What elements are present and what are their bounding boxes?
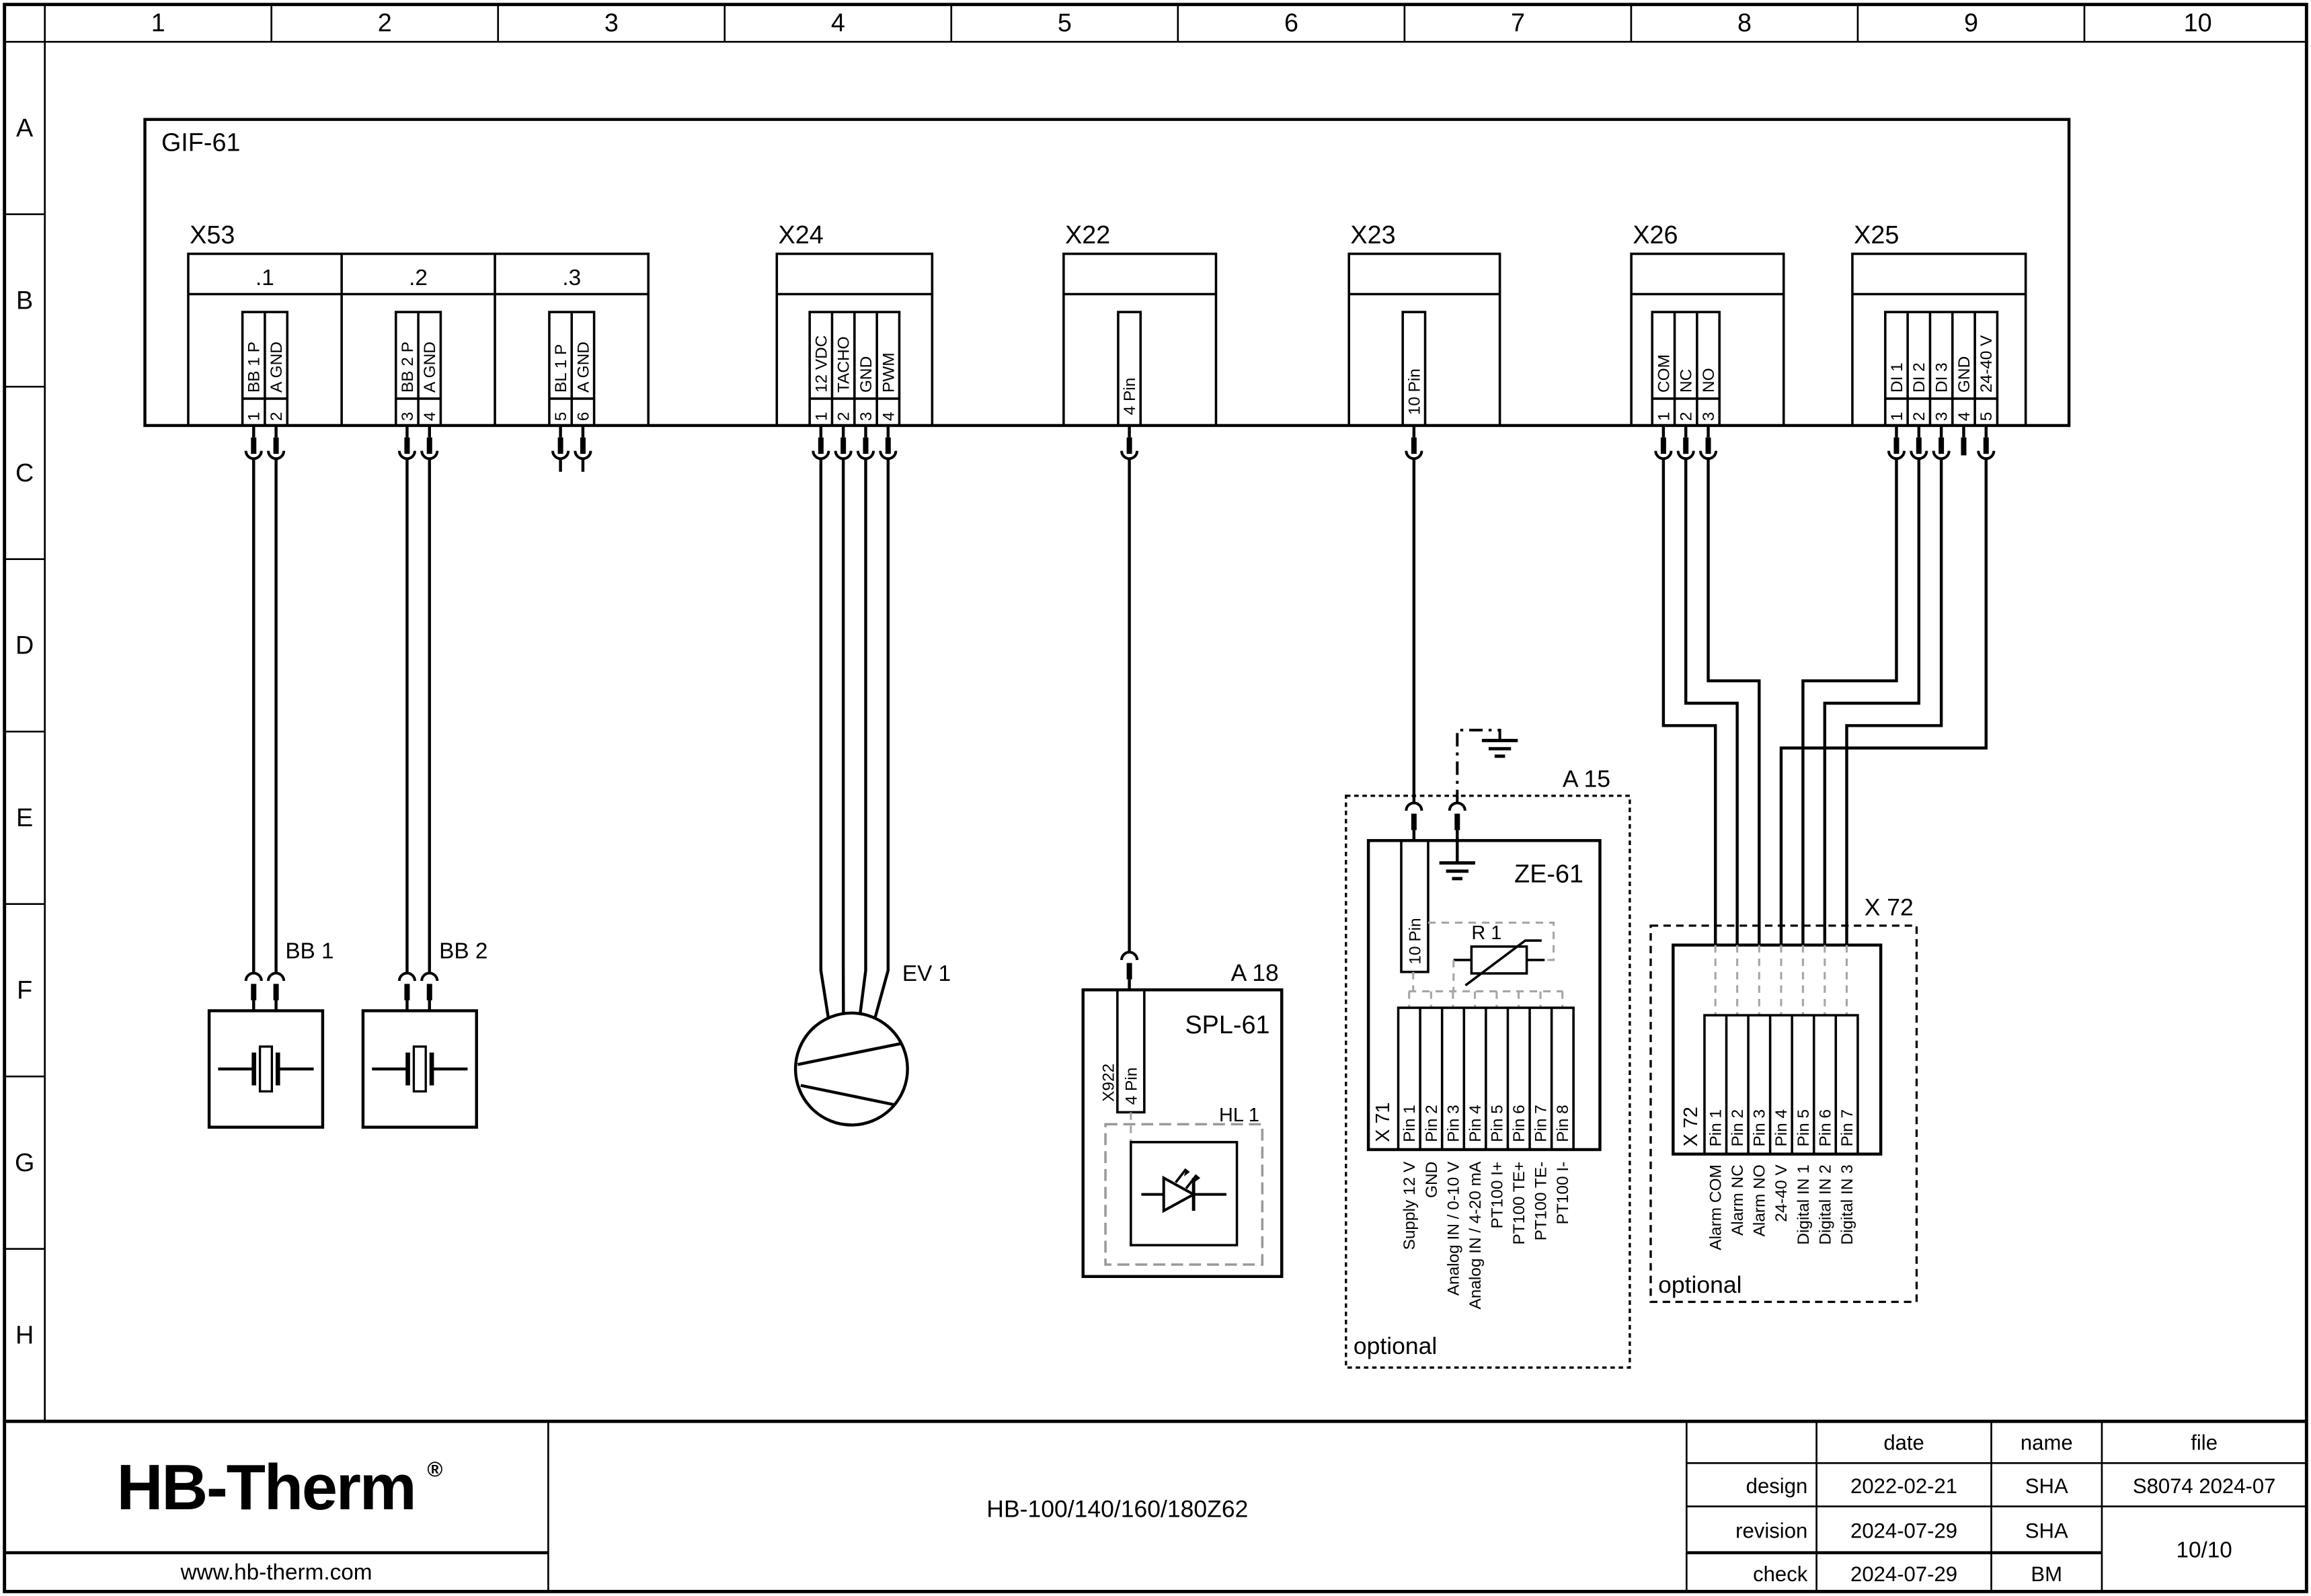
connector-x23: X23 10 Pin <box>1349 221 1499 426</box>
plug-icon <box>1122 426 1137 458</box>
component-a15-ze61: A 15 ZE-61 10 Pin R 1 <box>1346 730 1630 1367</box>
section-label: .1 <box>256 266 274 290</box>
grid-col-label: 3 <box>604 9 619 38</box>
pin-number: 3 <box>1933 412 1951 422</box>
pin-label: Pin 2 <box>1729 1109 1747 1147</box>
pin-label: Pin 4 <box>1466 1105 1485 1142</box>
pin-number: 2 <box>835 412 853 422</box>
pin-label: Pin 2 <box>1423 1105 1441 1142</box>
connector-label: X26 <box>1633 221 1678 249</box>
pin-number: 1 <box>1888 412 1906 422</box>
pin-label: 24-40 V <box>1977 335 1996 393</box>
check-date: 2024-07-29 <box>1850 1562 1957 1586</box>
grid-col-label: 5 <box>1058 9 1072 38</box>
column-header-name: name <box>2021 1431 2073 1454</box>
pin-label: 10 Pin <box>1405 368 1423 415</box>
ground-icon <box>1482 741 1518 756</box>
row-label-revision: revision <box>1735 1519 1807 1542</box>
pin-label: Pin 1 <box>1707 1109 1725 1147</box>
plug-icon <box>1655 426 1671 458</box>
grid-col-label: 2 <box>378 9 392 38</box>
pin-label: NC <box>1678 369 1696 393</box>
plug-icon <box>1978 426 1994 458</box>
pin-label: Pin 6 <box>1816 1109 1834 1147</box>
connector-label: X24 <box>779 221 824 249</box>
grid-row-label: G <box>15 1149 34 1177</box>
plug-icon <box>858 426 873 458</box>
pin-label: A GND <box>421 342 439 393</box>
grid-row-label: B <box>16 287 33 315</box>
pin-number: 4 <box>879 412 898 422</box>
pin-function-label: PT100 I- <box>1554 1162 1572 1225</box>
sheet-frame: 1 2 3 4 5 6 7 8 9 10 A B C D E F G H <box>5 5 2307 1592</box>
pin-function-label: Supply 12 V <box>1401 1161 1419 1250</box>
plug-icon <box>1700 426 1716 458</box>
plug-icon <box>1934 426 1949 458</box>
component-x72: X 72 X 72 Pin 1 Pin 2 Pin 3 Pin 4 Pin 5 … <box>1651 893 1916 1302</box>
resistor-label: R 1 <box>1471 922 1501 944</box>
plug-icon-pin-only <box>1961 426 1966 455</box>
component-ref: A 15 <box>1563 765 1610 792</box>
design-date: 2022-02-21 <box>1850 1474 1957 1498</box>
pin-label: TACHO <box>835 336 853 393</box>
pin-label: Pin 1 <box>1401 1105 1419 1142</box>
component-a18-spl61: A 18 SPL-61 X922 4 Pin HL 1 <box>1083 959 1282 1277</box>
pin-number: 2 <box>1910 412 1928 422</box>
connector-label: X25 <box>1854 221 1899 249</box>
pin-function-label: PT100 I+ <box>1488 1162 1506 1229</box>
connector-x24: X24 1 12 VDC 2 TACHO 3 GND 4 PWM <box>777 221 932 426</box>
column-header-date: date <box>1883 1431 1924 1454</box>
connector-x26: X26 1 COM 2 NC 3 NO <box>1631 221 1784 426</box>
plug-icon <box>399 426 415 458</box>
component-bb2: BB 2 <box>363 939 488 1127</box>
pin-number: 3 <box>399 412 417 422</box>
section-label: .3 <box>562 266 581 290</box>
fan-icon <box>797 1043 900 1105</box>
grid-col-label: 4 <box>831 9 845 38</box>
plug-icon <box>1678 426 1694 458</box>
vendor-logo: HB-Therm ® <box>116 1452 442 1523</box>
pin-label: PWM <box>879 352 898 393</box>
pin-number: 1 <box>1655 412 1673 422</box>
pin-function-label: 24-40 V <box>1772 1164 1791 1222</box>
plug-icon <box>1911 426 1926 458</box>
connector-label: X22 <box>1065 221 1110 249</box>
terminal-label: X 72 <box>1680 1107 1702 1146</box>
schematic-sheet: 1 2 3 4 5 6 7 8 9 10 A B C D E F G H GIF… <box>0 0 2311 1596</box>
plug-icon <box>268 426 284 458</box>
component-ref: A 18 <box>1231 959 1279 986</box>
section-label: .2 <box>409 266 428 290</box>
pin-function-label: Alarm NC <box>1729 1164 1747 1236</box>
plug-icon <box>268 973 284 1010</box>
pin-label: Pin 5 <box>1795 1109 1813 1147</box>
connector-x53: X53 .1 .2 .3 1 BB 1 P 2 A GND 3 BB 2 P 4… <box>188 221 648 426</box>
plug-icon <box>246 426 262 458</box>
plug-icon <box>1406 426 1421 458</box>
pin-number: 3 <box>857 412 875 422</box>
pin-label: Pin 4 <box>1772 1109 1791 1147</box>
plug-icon-unconnected <box>553 426 568 472</box>
ground-icon <box>1440 863 1475 879</box>
component-label: ZE-61 <box>1514 860 1583 888</box>
component-label: BB 2 <box>439 939 487 964</box>
pin-label: BB 1 P <box>245 342 264 393</box>
lamp-label: HL 1 <box>1219 1105 1259 1126</box>
crystal-icon <box>372 1047 467 1092</box>
terminal-label: X 71 <box>1372 1103 1394 1142</box>
pin-label: Pin 5 <box>1488 1105 1506 1142</box>
column-header-file: file <box>2191 1431 2218 1454</box>
registered-mark: ® <box>427 1458 442 1481</box>
pin-label: Pin 8 <box>1554 1105 1572 1142</box>
plug-icon <box>1889 426 1904 458</box>
connector-x22: X22 4 Pin <box>1064 221 1216 426</box>
logo-text: HB-Therm <box>116 1452 415 1523</box>
pin-label: DI 3 <box>1933 362 1951 393</box>
grid-row-label: H <box>15 1322 34 1350</box>
pin-label: A GND <box>574 342 592 393</box>
revision-date: 2024-07-29 <box>1850 1519 1957 1542</box>
pin-function-label: GND <box>1423 1162 1441 1198</box>
component-label: SPL-61 <box>1185 1011 1270 1039</box>
pin-number: 4 <box>421 412 439 422</box>
grid-col-label: 7 <box>1511 9 1525 38</box>
pin-label: COM <box>1655 354 1673 393</box>
website-text: www.hb-therm.com <box>180 1560 373 1585</box>
check-name: BM <box>2031 1562 2062 1586</box>
pin-label: NO <box>1700 368 1718 393</box>
optional-note: optional <box>1354 1332 1437 1359</box>
grid-row-label: F <box>17 977 32 1005</box>
revision-name: SHA <box>2025 1519 2068 1542</box>
pin-label: 10 Pin <box>1406 918 1424 964</box>
file-number: S8074 2024-07 <box>2133 1474 2276 1498</box>
plug-icon <box>1406 803 1421 840</box>
pin-function-label: PT100 TE- <box>1532 1162 1550 1241</box>
page-number: 10/10 <box>2176 1538 2232 1562</box>
connector-label: X23 <box>1350 221 1395 249</box>
component-label: EV 1 <box>902 961 951 986</box>
pin-function-label: Digital IN 1 <box>1795 1164 1813 1244</box>
pin-label: DI 2 <box>1910 362 1928 393</box>
grid-row-label: C <box>15 459 34 487</box>
design-name: SHA <box>2025 1474 2068 1498</box>
pin-label: GND <box>1955 356 1973 393</box>
connector-x25: X25 1 DI 1 2 DI 2 3 DI 3 4 GND 5 24-40 V <box>1852 221 2026 426</box>
internal-wiring <box>1715 945 1846 1015</box>
grid-col-label: 8 <box>1737 9 1752 38</box>
led-icon <box>1141 1169 1226 1211</box>
grid-row-label: E <box>16 804 33 832</box>
optional-note: optional <box>1658 1271 1741 1298</box>
component-ev1: EV 1 <box>795 961 951 1125</box>
pin-number: 1 <box>245 412 264 422</box>
pin-number: 2 <box>1678 412 1696 422</box>
pin-function-label: Digital IN 2 <box>1816 1164 1834 1244</box>
plug-connector-icons <box>246 426 1994 472</box>
grid-col-label: 9 <box>1964 9 1978 38</box>
connector-label: X53 <box>190 221 235 249</box>
pin-label: 4 Pin <box>1121 378 1139 415</box>
pin-label: 4 Pin <box>1122 1068 1140 1105</box>
plug-icon <box>399 973 415 1010</box>
grid-col-label: 6 <box>1284 9 1298 38</box>
plug-icon <box>1122 952 1137 990</box>
pin-number: 6 <box>574 412 592 422</box>
row-label-design: design <box>1746 1474 1808 1498</box>
plug-icon <box>422 973 437 1010</box>
grid-col-label: 10 <box>2184 9 2212 38</box>
component-label: BB 1 <box>285 939 334 964</box>
pin-number: 5 <box>552 412 570 422</box>
pin-function-label: Digital IN 3 <box>1838 1164 1856 1244</box>
grid-row-label: D <box>15 632 34 660</box>
pin-function-label: Analog IN / 0-10 V <box>1444 1161 1462 1295</box>
plug-icon <box>813 426 828 458</box>
pin-label: Pin 3 <box>1444 1105 1462 1142</box>
component-ref: X 72 <box>1865 893 1914 920</box>
component-bb1: BB 1 <box>209 939 334 1127</box>
plug-icon <box>880 426 896 458</box>
plug-icon <box>246 973 262 1011</box>
pin-label: BB 2 P <box>399 342 417 393</box>
pin-function-label: Analog IN / 4-20 mA <box>1466 1161 1485 1310</box>
crystal-icon <box>218 1047 313 1092</box>
title-block: HB-Therm ® www.hb-therm.com HB-100/140/1… <box>5 1421 2307 1591</box>
pin-label: Pin 6 <box>1510 1105 1528 1142</box>
pin-label: GND <box>857 356 875 393</box>
pin-number: 4 <box>1955 412 1973 422</box>
pin-number: 5 <box>1977 412 1996 422</box>
module-label: GIF-61 <box>161 128 241 157</box>
pin-function-label: PT100 TE+ <box>1510 1162 1528 1245</box>
grid-row-label: A <box>16 114 34 143</box>
wiring <box>253 458 1986 1019</box>
pin-label: BL 1 P <box>552 344 570 393</box>
plug-icon <box>1450 803 1465 840</box>
pin-label: Pin 3 <box>1751 1109 1769 1147</box>
connector-label: X922 <box>1099 1064 1118 1102</box>
document-title: HB-100/140/160/180Z62 <box>986 1495 1248 1522</box>
pin-label: Pin 7 <box>1838 1109 1856 1147</box>
pin-number: 1 <box>812 412 830 422</box>
pin-label: Pin 7 <box>1532 1105 1550 1142</box>
pin-label: 12 VDC <box>812 335 830 393</box>
pin-label: A GND <box>268 342 286 393</box>
row-label-check: check <box>1753 1562 1808 1586</box>
plug-icon-unconnected <box>575 426 590 472</box>
pin-function-label: Alarm NO <box>1751 1164 1769 1236</box>
plug-icon <box>836 426 851 458</box>
pin-number: 2 <box>268 412 286 422</box>
pin-number: 3 <box>1700 412 1718 422</box>
plug-icon <box>422 426 437 458</box>
pin-function-label: Alarm COM <box>1707 1164 1725 1250</box>
grid-col-label: 1 <box>151 9 165 38</box>
pin-label: DI 1 <box>1888 362 1906 393</box>
